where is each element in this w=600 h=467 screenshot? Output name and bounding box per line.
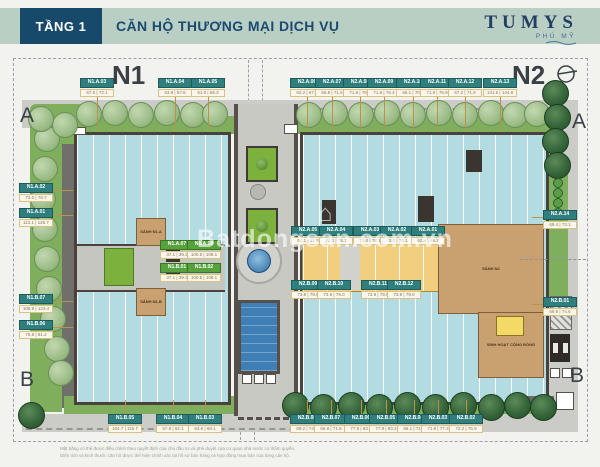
unit-areas: 66.8 | 71.8 — [314, 425, 348, 434]
unit-label-N1.A.01: N1.A.01112.1 | 126.7 — [19, 208, 53, 227]
tree-icon — [102, 100, 128, 126]
unit-id: N2.B.01 — [543, 297, 577, 307]
leader-line — [307, 400, 308, 414]
unit-id: N2.B.10 — [317, 280, 351, 290]
service-core — [550, 334, 570, 362]
unit-label-N1.A.05: N1.A.0561.0 | 65.3 — [191, 78, 225, 97]
leader-line — [532, 304, 543, 305]
tree-icon — [52, 112, 78, 138]
tree-icon — [76, 101, 102, 127]
unit-id: N1.B.06 — [19, 320, 53, 330]
tree-icon — [542, 128, 569, 155]
unit-areas: 108.9 | 123.4 — [19, 305, 53, 314]
tree-icon — [348, 102, 374, 128]
leader-line — [500, 93, 501, 131]
tree-icon — [32, 156, 58, 182]
brand-name: TUMYS — [484, 12, 578, 34]
leader-line — [53, 327, 73, 328]
tree-icon — [374, 100, 400, 126]
tree-icon — [504, 392, 531, 419]
unit-label-N1.A.04: N1.A.0453.8 | 57.6 — [158, 78, 192, 97]
grid-marker-a-left: A — [20, 104, 34, 128]
unit-id: N1.A.03 — [80, 78, 114, 88]
walkway-feature — [250, 184, 266, 200]
grid-marker-b-right: B — [570, 364, 584, 388]
n2-lobby-label: SẢNH N2 — [482, 267, 500, 272]
unit-areas: 73.9 | 79.0 — [387, 291, 421, 300]
leader-line — [205, 400, 206, 414]
section-line — [520, 259, 586, 260]
unit-id: N1.A.05 — [191, 78, 225, 88]
leader-line — [97, 93, 98, 131]
n2-small-shop — [496, 316, 524, 336]
unit-id: N1.B.07 — [19, 294, 53, 304]
leader-line — [384, 93, 385, 131]
leader-line — [307, 93, 308, 131]
swimming-pool — [238, 300, 280, 374]
n1-lobby-a-label: SẢNH N1.A — [140, 230, 162, 235]
unit-label-N1.B.04: N1.B.0457.8 | 62.1 — [156, 414, 190, 433]
leader-line — [332, 93, 333, 131]
leader-line — [53, 190, 73, 191]
unit-areas: 73.9 | 79.0 — [317, 291, 351, 300]
brand-logo: TUMYS PHÚ MỸ — [484, 12, 578, 45]
utility-box — [556, 392, 574, 410]
tree-icon — [322, 100, 348, 126]
unit-id: N1.B.05 — [108, 414, 142, 424]
page-title: CĂN HỘ THƯƠNG MẠI DỊCH VỤ — [116, 8, 339, 44]
tree-icon — [18, 402, 45, 429]
unit-label-N1.B.07: N1.B.07108.9 | 123.4 — [19, 294, 53, 313]
tree-icon — [48, 360, 74, 386]
unit-label-N1.B.03: N1.B.0363.6 | 68.1 — [188, 414, 222, 433]
unit-id: N2.A.13 — [483, 78, 517, 88]
leader-line — [360, 93, 361, 131]
unit-areas: 73.0 | 78.7 — [19, 194, 53, 203]
tree-icon — [128, 102, 154, 128]
floor-plan-screenshot: TẦNG 1 CĂN HỘ THƯƠNG MẠI DỊCH VỤ TUMYS P… — [0, 0, 600, 467]
watermark-text: Batdongsan.com.vn — [190, 226, 460, 252]
unit-label-N1.B.02: N1.B.02100.5 | 108.1 — [187, 263, 221, 282]
bush-icon — [553, 178, 563, 188]
unit-label-N2.A.12: N2.A.1267.2 | 71.9 — [448, 78, 482, 97]
leader-line — [438, 400, 439, 414]
brand-wave-icon — [542, 40, 578, 45]
tree-icon — [44, 336, 70, 362]
tree-icon — [530, 394, 557, 421]
leader-line — [466, 400, 467, 414]
unit-id: N1.A.02 — [19, 183, 53, 193]
unit-areas: 61.0 | 65.3 — [191, 89, 225, 98]
unit-id: N2.A.14 — [543, 210, 577, 220]
n1-green-unit — [104, 248, 134, 286]
bush-icon — [553, 188, 563, 198]
n1-lobby-b-label: SẢNH N1.B — [140, 300, 162, 305]
tree-icon — [202, 101, 228, 127]
watermark-house-icon: ⌂ — [190, 202, 460, 226]
tree-icon — [34, 246, 60, 272]
unit-label-N2.B.12: N2.B.1273.9 | 79.0 — [387, 280, 421, 299]
unit-areas: 67.5 | 72.1 — [80, 89, 114, 98]
header-bar: TẦNG 1 CĂN HỘ THƯƠNG MẠI DỊCH VỤ TUMYS P… — [0, 8, 600, 44]
leader-line — [53, 215, 73, 216]
leader-line — [331, 400, 332, 414]
leader-line — [361, 400, 362, 414]
unit-id: N1.A.04 — [158, 78, 192, 88]
n1-lobby-b: SẢNH N1.B — [136, 288, 166, 316]
pool-equipment — [266, 374, 276, 384]
unit-label-N2.B.01: N2.B.0169.9 | 74.6 — [543, 297, 577, 316]
unit-label-N1.A.02: N1.A.0273.0 | 78.7 — [19, 183, 53, 202]
unit-id: N2.A.12 — [448, 78, 482, 88]
unit-label-N1.B.05: N1.B.05104.7 | 115.7 — [108, 414, 142, 433]
unit-id: N2.B.12 — [387, 280, 421, 290]
disclaimer-line-2: Diện tích và kích thước căn hộ được thể … — [60, 452, 520, 459]
unit-areas: 53.8 | 57.6 — [158, 89, 192, 98]
block-n1-label: N1 — [112, 60, 145, 91]
unit-label-N1.A.03: N1.A.0367.5 | 72.1 — [80, 78, 114, 97]
leader-line — [53, 301, 73, 302]
unit-id: N2.B.07 — [314, 414, 348, 424]
unit-areas: 104.7 | 115.7 — [108, 425, 142, 434]
leader-line — [175, 93, 176, 131]
unit-areas: 131.6 | 144.8 — [483, 89, 517, 98]
leader-line — [465, 93, 466, 131]
leader-line — [437, 93, 438, 131]
planter-tree-icon — [256, 158, 268, 170]
brand-subtitle: PHÚ MỸ — [484, 33, 576, 40]
bush-icon — [553, 198, 563, 208]
leader-line — [532, 217, 543, 218]
unit-label-N2.B.10: N2.B.1073.9 | 79.0 — [317, 280, 351, 299]
tree-icon — [544, 104, 571, 131]
tree-icon — [296, 102, 322, 128]
unit-label-N2.A.13: N2.A.13131.6 | 144.8 — [483, 78, 517, 97]
leader-line — [173, 400, 174, 414]
unit-label-N2.B.07: N2.B.0766.8 | 71.8 — [314, 414, 348, 433]
unit-id: N1.B.03 — [188, 414, 222, 424]
unit-label-N2.B.02: N2.B.0272.2 | 76.9 — [449, 414, 483, 433]
n2-stair-core — [466, 150, 482, 172]
compass-icon — [554, 62, 580, 88]
unit-areas: 72.2 | 76.9 — [449, 425, 483, 434]
watermark: ⌂ Batdongsan.com.vn — [190, 202, 460, 252]
kiosk — [284, 124, 298, 134]
unit-areas: 69.4 | 73.1 — [543, 221, 577, 230]
unit-id: N1.B.02 — [187, 263, 221, 273]
pool-equipment — [254, 374, 264, 384]
leader-line — [208, 93, 209, 131]
unit-areas: 67.2 | 71.9 — [448, 89, 482, 98]
tree-icon — [544, 152, 571, 179]
unit-areas: 69.9 | 74.6 — [543, 308, 577, 317]
unit-id: N1.B.04 — [156, 414, 190, 424]
planter — [246, 146, 278, 182]
unit-areas: 57.8 | 62.1 — [156, 425, 190, 434]
tree-icon — [154, 100, 180, 126]
unit-areas: 75.8 | 81.2 — [19, 331, 53, 340]
leader-line — [386, 400, 387, 414]
community-room-label: SINH HOẠT CỘNG ĐỒNG — [487, 343, 535, 348]
leader-line — [125, 400, 126, 414]
leader-line — [413, 93, 414, 131]
service-box — [550, 368, 560, 378]
tree-icon — [426, 100, 452, 126]
pool-equipment — [242, 374, 252, 384]
unit-label-N2.A.14: N2.A.1469.4 | 73.1 — [543, 210, 577, 229]
grid-marker-b-left: B — [20, 368, 34, 392]
unit-areas: 100.5 | 108.1 — [187, 274, 221, 283]
unit-id: N1.A.01 — [19, 208, 53, 218]
grid-marker-a-right: A — [572, 110, 586, 134]
unit-id: N2.B.02 — [449, 414, 483, 424]
unit-label-N1.B.06: N1.B.0675.8 | 81.2 — [19, 320, 53, 339]
leader-line — [414, 400, 415, 414]
unit-areas: 63.6 | 68.1 — [188, 425, 222, 434]
unit-areas: 112.1 | 126.7 — [19, 219, 53, 228]
floor-badge: TẦNG 1 — [20, 8, 102, 44]
